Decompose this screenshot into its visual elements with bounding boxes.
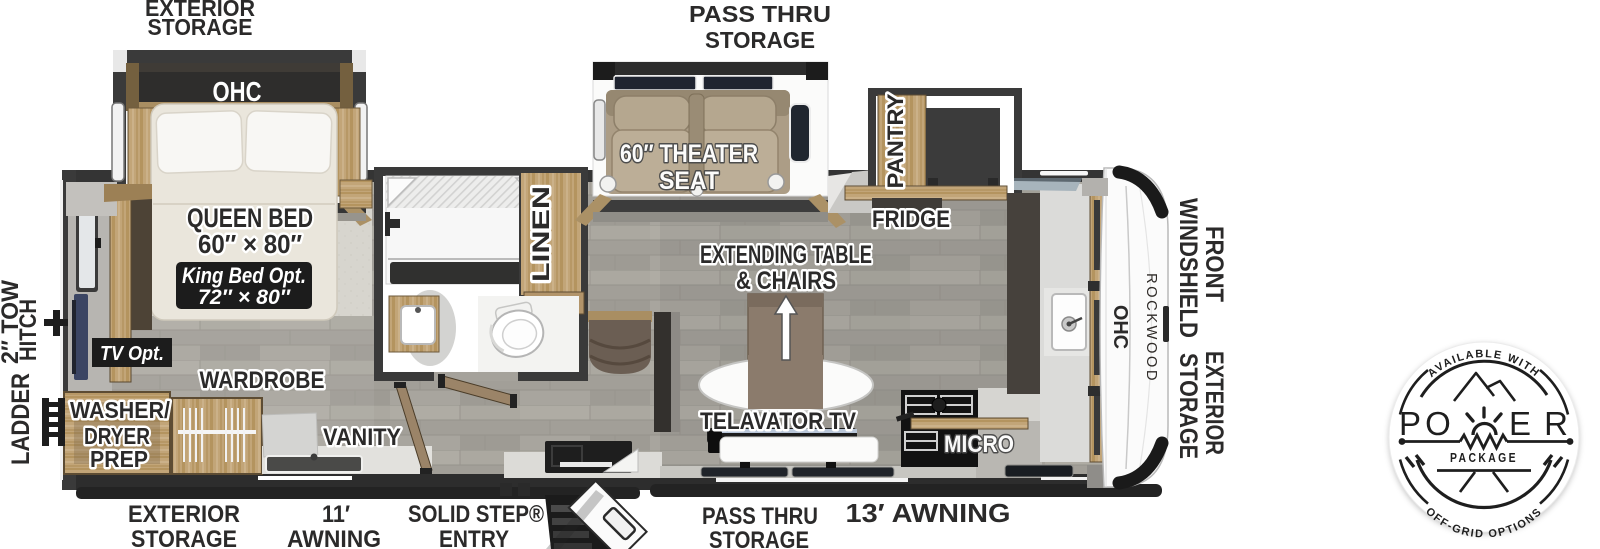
svg-text:60″ THEATER: 60″ THEATER bbox=[620, 140, 758, 168]
svg-text:R: R bbox=[1544, 405, 1568, 442]
svg-text:SOLID STEP®: SOLID STEP® bbox=[408, 501, 544, 528]
svg-text:LADDER: LADDER bbox=[7, 373, 35, 465]
svg-text:MICRO: MICRO bbox=[944, 431, 1014, 458]
svg-text:PREP: PREP bbox=[90, 446, 148, 472]
svg-text:11′: 11′ bbox=[322, 501, 350, 528]
svg-text:VANITY: VANITY bbox=[323, 424, 401, 451]
svg-text:72″ × 80″: 72″ × 80″ bbox=[198, 286, 291, 309]
svg-text:STORAGE: STORAGE bbox=[131, 526, 237, 549]
svg-text:OHC: OHC bbox=[1109, 305, 1131, 349]
svg-text:EXTERIOR: EXTERIOR bbox=[128, 501, 240, 528]
svg-text:TV Opt.: TV Opt. bbox=[100, 343, 164, 365]
svg-text:EXTENDING TABLE: EXTENDING TABLE bbox=[700, 241, 872, 269]
svg-text:ROCKWOOD: ROCKWOOD bbox=[1143, 273, 1160, 383]
svg-text:P: P bbox=[1399, 405, 1421, 442]
svg-text:AWNING: AWNING bbox=[287, 526, 381, 549]
svg-text:E: E bbox=[1509, 405, 1531, 442]
svg-text:13′ AWNING: 13′ AWNING bbox=[846, 498, 1011, 528]
svg-text:WARDROBE: WARDROBE bbox=[200, 367, 325, 394]
svg-text:TELAVATOR TV: TELAVATOR TV bbox=[700, 408, 856, 435]
svg-text:EXTERIOR: EXTERIOR bbox=[1200, 351, 1228, 455]
svg-text:FRONT: FRONT bbox=[1200, 226, 1228, 302]
svg-text:WINDSHIELD: WINDSHIELD bbox=[1174, 198, 1202, 338]
svg-text:SEAT: SEAT bbox=[659, 167, 719, 195]
svg-text:ENTRY: ENTRY bbox=[439, 526, 509, 549]
svg-text:WASHER/: WASHER/ bbox=[70, 397, 171, 423]
svg-text:FRIDGE: FRIDGE bbox=[872, 206, 950, 233]
svg-text:PACKAGE: PACKAGE bbox=[1450, 450, 1518, 465]
svg-text:PANTRY: PANTRY bbox=[883, 93, 908, 188]
svg-text:STORAGE: STORAGE bbox=[705, 27, 815, 53]
svg-text:OHC: OHC bbox=[213, 76, 262, 107]
svg-text:PASS THRU: PASS THRU bbox=[702, 503, 818, 530]
svg-text:King Bed Opt.: King Bed Opt. bbox=[182, 263, 306, 288]
svg-text:STORAGE: STORAGE bbox=[148, 14, 253, 40]
svg-text:PASS THRU: PASS THRU bbox=[689, 1, 831, 27]
svg-text:HITCH: HITCH bbox=[15, 299, 42, 361]
svg-text:60″ × 80″: 60″ × 80″ bbox=[198, 229, 302, 259]
svg-text:STORAGE: STORAGE bbox=[709, 527, 809, 549]
svg-text:STORAGE: STORAGE bbox=[1174, 353, 1202, 459]
svg-text:& CHAIRS: & CHAIRS bbox=[736, 267, 836, 295]
svg-text:LINEN: LINEN bbox=[528, 186, 555, 282]
svg-text:O: O bbox=[1425, 405, 1451, 442]
